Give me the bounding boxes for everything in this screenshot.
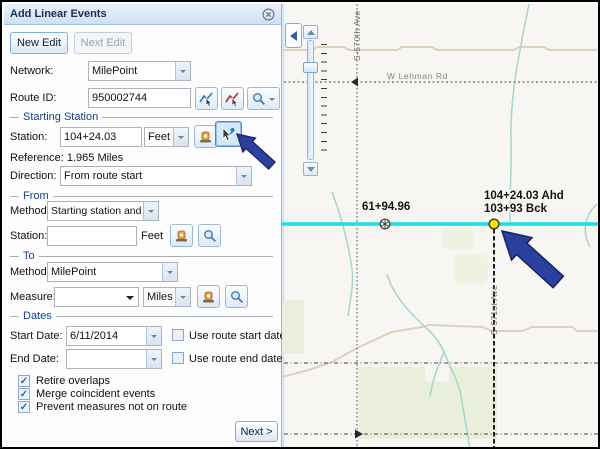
to-separator: To [10, 250, 273, 262]
selected-point-label-back: 103+93 Bck [484, 203, 548, 215]
use-route-end-date-checkbox[interactable] [172, 352, 184, 364]
start-date-value: 6/11/2014 [67, 327, 146, 345]
road-label-horizontal: W Lehman Rd [387, 71, 448, 81]
route-id-input[interactable]: 950002744 [88, 88, 191, 108]
measure-units-value: Miles [144, 288, 175, 306]
network-label: Network: [10, 65, 53, 77]
to-method-value: MilePoint [48, 263, 162, 281]
map-canvas[interactable]: W Lehman Rd S-570th Ave S-571st Ave 61+9… [282, 4, 600, 449]
starting-station-title: Starting Station [23, 111, 98, 123]
zoom-slider-ticks [321, 44, 327, 158]
from-search-button[interactable] [198, 224, 221, 247]
from-title: From [23, 190, 49, 202]
from-units-text: Feet [141, 226, 163, 246]
clear-route-icon [225, 91, 241, 107]
panel-collapse-tab[interactable] [285, 23, 302, 48]
search-icon [252, 92, 266, 106]
direction-value: From route start [61, 167, 236, 185]
to-method-label: Method: [10, 266, 50, 278]
road-label-vertical-left: S-570th Ave [352, 10, 362, 61]
reference-text: Reference: 1.965 Miles [10, 152, 123, 164]
end-date-label: End Date: [10, 353, 59, 365]
from-station-tool-button[interactable] [170, 224, 193, 247]
from-method-select[interactable]: Starting station and offset [47, 201, 159, 221]
zoom-slider [303, 25, 327, 177]
merge-coincident-events-checkbox[interactable]: ✓ [18, 388, 30, 400]
clear-route-selection-button[interactable] [221, 87, 244, 110]
start-date-label: Start Date: [10, 330, 63, 342]
end-date-value [67, 350, 146, 368]
end-date-input[interactable] [66, 349, 162, 369]
zoom-slider-track[interactable] [307, 40, 314, 160]
chevron-down-icon [269, 98, 275, 104]
station-tool-button[interactable] [194, 125, 217, 148]
to-title: To [23, 250, 35, 262]
map-graphics: W Lehman Rd S-570th Ave S-571st Ave 61+9… [282, 4, 600, 449]
new-edit-button[interactable]: New Edit [10, 32, 68, 54]
station-tool-icon [174, 228, 189, 243]
start-date-input[interactable]: 6/11/2014 [66, 326, 162, 346]
prevent-measures-label: Prevent measures not on route [36, 401, 187, 413]
from-method-value: Starting station and offset [48, 202, 143, 220]
screenshot-root: Add Linear Events New Edit Next Edit Net… [0, 0, 600, 449]
chevron-down-icon[interactable] [126, 296, 134, 304]
station-marker [380, 219, 390, 229]
chevron-down-icon[interactable] [146, 350, 161, 368]
add-linear-events-panel: Add Linear Events New Edit Next Edit Net… [4, 4, 282, 449]
from-method-label: Method: [10, 205, 50, 217]
station-tool-icon [201, 289, 216, 304]
station-units-select[interactable]: Feet [144, 127, 189, 147]
station-tool-icon [198, 129, 213, 144]
route-search-menu-button[interactable] [247, 87, 280, 110]
chevron-down-icon[interactable] [173, 128, 188, 146]
dates-separator: Dates [10, 310, 273, 322]
route-id-label: Route ID: [10, 92, 56, 104]
measure-label: Measure: [10, 291, 56, 303]
measure-units-select[interactable]: Miles [143, 287, 191, 307]
select-route-button[interactable] [195, 87, 218, 110]
zoom-out-button[interactable] [303, 162, 318, 176]
chevron-down-icon[interactable] [162, 263, 177, 281]
panel-header: Add Linear Events [4, 4, 281, 25]
road-label-vertical-right: S-571st Ave [489, 285, 499, 335]
measure-station-tool-button[interactable] [197, 285, 220, 308]
from-station-label: Station: [10, 230, 47, 242]
use-route-start-date-checkbox[interactable] [172, 329, 184, 341]
chevron-down-icon[interactable] [143, 202, 158, 220]
direction-label: Direction: [10, 170, 56, 182]
station-input[interactable]: 104+24.03 [60, 127, 142, 147]
network-value: MilePoint [89, 62, 175, 80]
station-measure-label: 61+94.96 [362, 201, 410, 213]
retire-overlaps-checkbox[interactable]: ✓ [18, 375, 30, 387]
next-edit-button[interactable]: Next Edit [74, 32, 132, 54]
from-station-input[interactable] [47, 226, 137, 246]
next-button[interactable]: Next > [235, 421, 278, 442]
use-route-start-date-label: Use route start date [189, 330, 286, 342]
selected-point-marker[interactable] [489, 219, 499, 229]
retire-overlaps-label: Retire overlaps [36, 375, 110, 387]
station-label: Station: [10, 131, 47, 143]
panel-title: Add Linear Events [10, 8, 262, 20]
zoom-in-button[interactable] [303, 25, 318, 39]
network-select[interactable]: MilePoint [88, 61, 191, 81]
prevent-measures-checkbox[interactable]: ✓ [18, 401, 30, 413]
select-route-icon [199, 91, 215, 107]
zoom-slider-thumb[interactable] [303, 62, 318, 73]
search-icon [203, 229, 217, 243]
to-method-select[interactable]: MilePoint [47, 262, 178, 282]
station-units-value: Feet [145, 128, 173, 146]
close-icon[interactable] [262, 8, 275, 21]
annotation-arrow-panel [232, 130, 284, 172]
use-route-end-date-label: Use route end date [189, 353, 283, 365]
chevron-down-icon[interactable] [175, 62, 190, 80]
measure-combo[interactable] [54, 287, 139, 307]
merge-coincident-events-label: Merge coincident events [36, 388, 155, 400]
dates-title: Dates [23, 310, 52, 322]
chevron-down-icon[interactable] [146, 327, 161, 345]
direction-select[interactable]: From route start [60, 166, 252, 186]
chevron-down-icon[interactable] [175, 288, 190, 306]
measure-search-button[interactable] [225, 285, 248, 308]
search-icon [230, 290, 244, 304]
selected-point-label-ahead: 104+24.03 Ahd [484, 190, 564, 202]
